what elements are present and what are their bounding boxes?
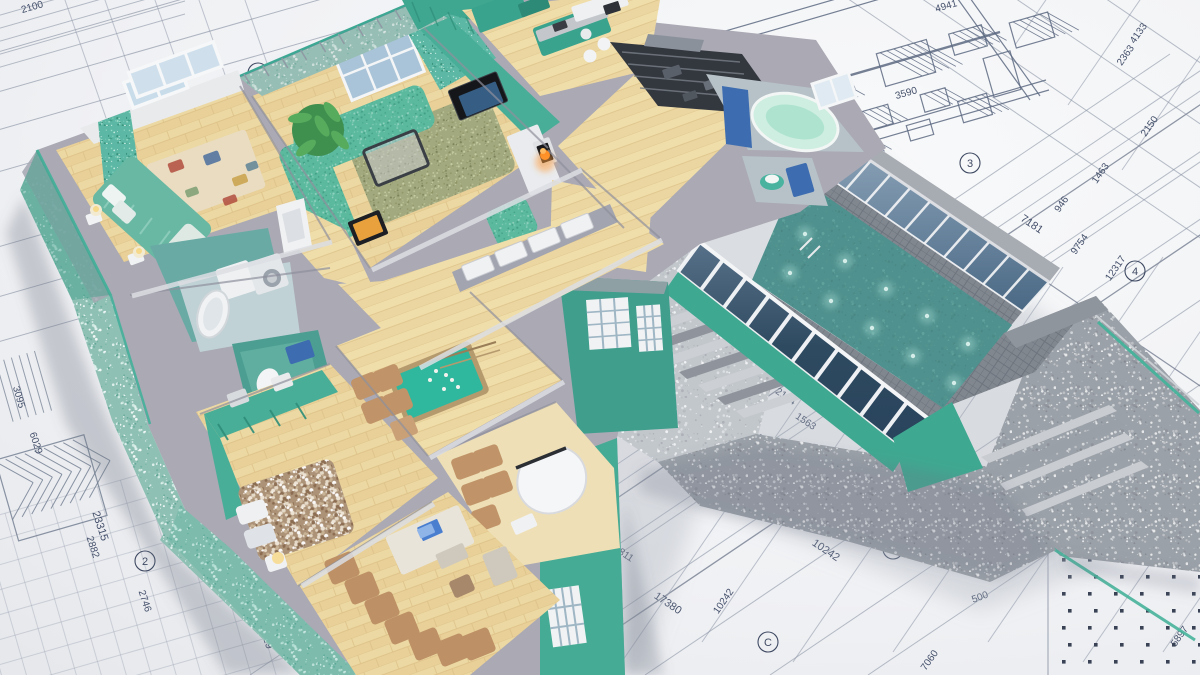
svg-text:3: 3 xyxy=(967,158,973,170)
svg-text:C: C xyxy=(764,637,772,649)
svg-text:4: 4 xyxy=(1132,266,1138,278)
svg-text:2: 2 xyxy=(142,556,148,568)
